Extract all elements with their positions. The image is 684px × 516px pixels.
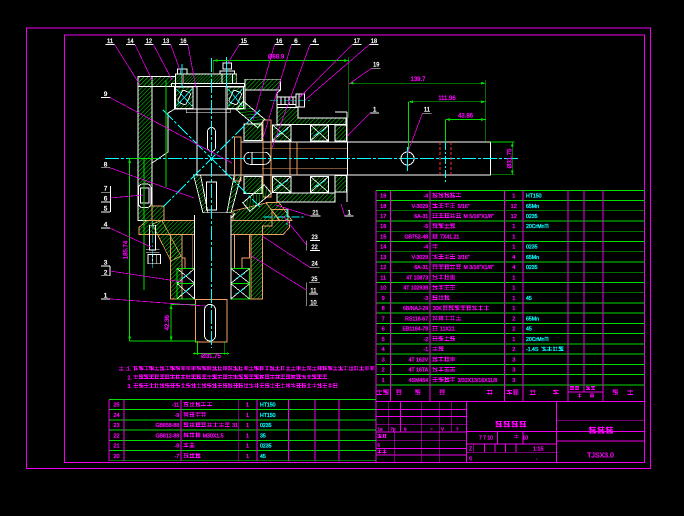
svg-text:V-3029: V-3029 — [412, 204, 429, 210]
svg-text:7X41.21: 7X41.21 — [440, 234, 459, 240]
svg-text:2: 2 — [104, 269, 108, 276]
svg-text:9: 9 — [382, 296, 385, 302]
svg-text:17: 17 — [380, 214, 386, 220]
svg-text:8: 8 — [382, 306, 385, 312]
svg-text:13: 13 — [163, 38, 170, 45]
svg-text:45: 45 — [260, 454, 266, 460]
svg-text:1: 1 — [512, 224, 515, 230]
svg-text:1: 1 — [246, 423, 249, 429]
svg-text:4T 162V: 4T 162V — [409, 357, 429, 363]
svg-text:35: 35 — [260, 433, 266, 439]
svg-text:23: 23 — [113, 423, 119, 429]
svg-text:3: 3 — [512, 357, 515, 363]
svg-text:31: 31 — [232, 423, 238, 429]
svg-text:0235: 0235 — [260, 444, 272, 450]
svg-text:GB812-88: GB812-88 — [155, 433, 179, 439]
svg-text:EB1184-78: EB1184-78 — [403, 327, 429, 333]
svg-text:11X21: 11X21 — [440, 327, 455, 333]
svg-text:1: 1 — [246, 403, 249, 409]
svg-text:0235: 0235 — [526, 245, 538, 251]
svg-text:1: 1 — [512, 286, 515, 292]
svg-text:4T 10873: 4T 10873 — [406, 275, 428, 281]
svg-text:7: 7 — [382, 316, 385, 322]
svg-text:2: 2 — [512, 327, 515, 333]
svg-text:1: 1 — [246, 444, 249, 450]
svg-text:M 5/16"X1/8": M 5/16"X1/8" — [464, 214, 494, 220]
svg-text:11: 11 — [380, 275, 386, 281]
svg-text:12: 12 — [146, 38, 153, 45]
svg-text:-5: -5 — [423, 224, 428, 230]
svg-text:3: 3 — [512, 378, 515, 384]
svg-text:6: 6 — [294, 38, 298, 45]
svg-text:1a: 1a — [378, 427, 384, 432]
svg-text:21: 21 — [113, 444, 119, 450]
svg-text:24: 24 — [113, 413, 119, 419]
svg-text:1: 1 — [373, 106, 377, 113]
svg-text:4: 4 — [382, 347, 385, 353]
svg-text:Ø31.75: Ø31.75 — [507, 148, 513, 168]
svg-text:15: 15 — [241, 38, 248, 45]
svg-text:111.96: 111.96 — [438, 96, 456, 102]
svg-text:22: 22 — [113, 433, 119, 439]
svg-text:-4: -4 — [423, 245, 428, 251]
svg-text:-3: -3 — [423, 296, 428, 302]
svg-text:6: 6 — [382, 327, 385, 333]
svg-text:17: 17 — [354, 38, 361, 45]
svg-text:65Mn: 65Mn — [526, 204, 539, 210]
svg-text:2: 2 — [512, 316, 515, 322]
svg-text:3.: 3. — [128, 384, 132, 390]
svg-text:10: 10 — [523, 436, 529, 442]
svg-text:M30X1.5: M30X1.5 — [203, 433, 224, 439]
svg-text:HT150: HT150 — [526, 194, 542, 200]
svg-text:V: V — [441, 427, 444, 432]
svg-text:12: 12 — [511, 204, 517, 210]
svg-text:-4: -4 — [423, 194, 428, 200]
svg-text:1: 1 — [512, 194, 515, 200]
svg-text:V-3029: V-3029 — [412, 255, 429, 261]
svg-text:1: 1 — [512, 234, 515, 240]
svg-text:20: 20 — [113, 454, 119, 460]
svg-text:4: 4 — [313, 38, 317, 45]
svg-text:5: 5 — [382, 337, 385, 343]
svg-text:185.74: 185.74 — [124, 240, 130, 259]
svg-text:-1.4S: -1.4S — [526, 347, 539, 353]
svg-text:3: 3 — [512, 368, 515, 374]
svg-text:6A-31: 6A-31 — [414, 265, 428, 271]
svg-text:-7: -7 — [174, 454, 179, 460]
svg-text:42.36: 42.36 — [165, 315, 171, 331]
svg-text:45: 45 — [526, 327, 532, 333]
svg-text:19: 19 — [373, 62, 380, 69]
svg-text:12: 12 — [511, 214, 517, 220]
svg-text:1: 1 — [246, 433, 249, 439]
svg-text:13: 13 — [380, 255, 386, 261]
svg-text:22: 22 — [312, 244, 319, 251]
svg-text:1: 1 — [246, 454, 249, 460]
svg-text:HT150: HT150 — [260, 403, 276, 409]
svg-text:24: 24 — [312, 261, 319, 268]
svg-text:5/16": 5/16" — [458, 204, 470, 210]
svg-text:21: 21 — [312, 210, 319, 217]
svg-text:1:15: 1:15 — [533, 447, 544, 453]
svg-text:7 7 10: 7 7 10 — [479, 436, 493, 442]
svg-text:1: 1 — [512, 275, 515, 281]
svg-text:10: 10 — [310, 299, 317, 306]
svg-text:15: 15 — [380, 234, 386, 240]
svg-text:6: 6 — [104, 196, 108, 203]
svg-text:4: 4 — [512, 265, 515, 271]
svg-text:~: ~ — [430, 427, 433, 432]
svg-text:0235: 0235 — [260, 423, 272, 429]
svg-text:7: 7 — [104, 186, 108, 193]
svg-text:18: 18 — [371, 38, 378, 45]
svg-text:RS118-67: RS118-67 — [405, 316, 428, 322]
svg-text:q: q — [469, 456, 472, 462]
svg-text:16: 16 — [380, 224, 386, 230]
svg-text:11: 11 — [424, 107, 431, 114]
svg-text:23: 23 — [312, 234, 319, 241]
svg-text::1.: :1. — [126, 367, 132, 373]
svg-text:-8: -8 — [174, 444, 179, 450]
svg-text:9: 9 — [104, 91, 108, 98]
svg-text:14: 14 — [380, 245, 386, 251]
svg-text:1: 1 — [512, 296, 515, 302]
svg-text:6B/NAJ-29: 6B/NAJ-29 — [403, 306, 428, 312]
svg-text:2: 2 — [512, 347, 515, 353]
svg-text:5: 5 — [104, 206, 108, 213]
svg-text:19: 19 — [380, 194, 386, 200]
svg-text:M 3/16"X1/8": M 3/16"X1/8" — [464, 265, 494, 271]
svg-text:-9: -9 — [174, 413, 179, 419]
svg-text:1: 1 — [512, 306, 515, 312]
svg-text:30K: 30K — [433, 306, 443, 312]
svg-text:1: 1 — [246, 413, 249, 419]
svg-text:Ø31.75: Ø31.75 — [201, 354, 221, 360]
svg-text:65Mn: 65Mn — [526, 316, 539, 322]
svg-text:18: 18 — [380, 204, 386, 210]
svg-text:3/16": 3/16" — [458, 255, 470, 261]
svg-text:3: 3 — [382, 357, 385, 363]
svg-text:0235: 0235 — [526, 214, 538, 220]
svg-text:-2: -2 — [423, 337, 428, 343]
svg-text:GB858-88: GB858-88 — [155, 423, 179, 429]
svg-text:1: 1 — [104, 292, 108, 299]
svg-text:12: 12 — [380, 265, 386, 271]
svg-text:43.86: 43.86 — [458, 114, 474, 120]
svg-text:1: 1 — [512, 245, 515, 251]
svg-text:20CrMnTi: 20CrMnTi — [526, 224, 549, 230]
svg-text:20CrMnTi: 20CrMnTi — [526, 337, 549, 343]
svg-text:10: 10 — [380, 286, 386, 292]
svg-text:3/32X13/16X11/8: 3/32X13/16X11/8 — [458, 378, 498, 384]
svg-text:14: 14 — [127, 38, 134, 45]
svg-text:Z: Z — [469, 447, 472, 453]
svg-text:45: 45 — [526, 296, 532, 302]
svg-text:1: 1 — [347, 210, 351, 217]
svg-text:4: 4 — [104, 222, 108, 229]
svg-text:8: 8 — [104, 161, 108, 168]
svg-text:25: 25 — [113, 403, 119, 409]
svg-text:0235: 0235 — [526, 265, 538, 271]
svg-text:139.7: 139.7 — [410, 77, 426, 83]
svg-text:2: 2 — [382, 368, 385, 374]
svg-text:16: 16 — [276, 38, 283, 45]
svg-text:4T 102938: 4T 102938 — [403, 286, 428, 292]
svg-text:4T 16TA: 4T 16TA — [409, 368, 429, 374]
svg-text:HT150: HT150 — [260, 413, 276, 419]
svg-text:-1: -1 — [423, 347, 428, 353]
svg-text:16: 16 — [180, 38, 187, 45]
svg-text:2.: 2. — [128, 375, 132, 381]
svg-text:25: 25 — [311, 276, 318, 283]
svg-text:65Mn: 65Mn — [526, 255, 539, 261]
svg-text:7p: 7p — [391, 427, 397, 432]
svg-text:4SM454: 4SM454 — [409, 378, 428, 384]
svg-text:1: 1 — [512, 337, 515, 343]
svg-text:GB752-48: GB752-48 — [404, 234, 428, 240]
svg-text:3: 3 — [104, 259, 108, 266]
svg-text:1: 1 — [382, 378, 385, 384]
svg-text:4: 4 — [512, 255, 515, 261]
svg-text:11: 11 — [310, 287, 317, 294]
svg-text:11: 11 — [107, 38, 114, 45]
svg-text:TJSX3.0: TJSX3.0 — [587, 452, 614, 459]
svg-text:6A-31: 6A-31 — [414, 214, 428, 220]
svg-text:-11: -11 — [172, 403, 179, 409]
